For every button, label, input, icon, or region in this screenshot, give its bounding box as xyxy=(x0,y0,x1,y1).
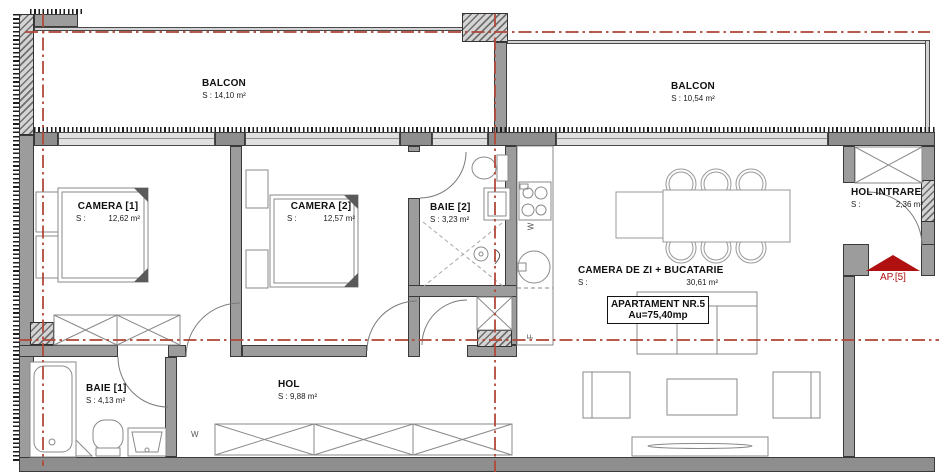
shower-drain xyxy=(474,247,488,261)
washer-label-hol: W xyxy=(191,430,199,439)
armchair-right xyxy=(773,372,820,418)
living-area: 30,61 m² xyxy=(686,278,718,287)
armchair-left xyxy=(583,372,630,418)
baie1-name: BAIE [1] xyxy=(86,383,150,394)
dining-table xyxy=(663,190,790,242)
baie2-area: S : 3,23 m² xyxy=(430,215,490,224)
nightstand xyxy=(36,192,58,232)
label-baie1: BAIE [1] S : 4,13 m² xyxy=(86,383,150,405)
axis-line-vertical-left xyxy=(42,14,44,466)
label-balcon1: BALCON S : 14,10 m² xyxy=(186,78,262,100)
hol-area: S : 9,88 m² xyxy=(278,392,338,401)
axis-line-vertical-center xyxy=(494,14,496,472)
floor-plan: BALCON S : 14,10 m² BALCON S : 10,54 m² … xyxy=(0,0,939,475)
axis-line-horizontal-bottom xyxy=(19,339,939,341)
apartment-number: APARTAMENT NR.5 xyxy=(610,299,706,310)
baie2-name: BAIE [2] xyxy=(430,202,490,213)
corner-shelf xyxy=(76,440,92,456)
nightstand xyxy=(246,170,268,208)
washer-label-kitchen: W xyxy=(526,223,535,231)
entrance-arrow-icon xyxy=(866,255,920,271)
label-hol-intrare: HOL INTRARE S : 2,36 m² xyxy=(851,187,923,209)
kitchen-island xyxy=(616,192,663,238)
toilet-tank xyxy=(497,155,508,181)
tv-stand xyxy=(632,437,768,456)
hol-name: HOL xyxy=(278,379,338,390)
door-arc-camera1 xyxy=(186,303,240,357)
balcon1-name: BALCON xyxy=(186,78,262,89)
camera1-s: S : xyxy=(76,214,86,223)
camera1-name: CAMERA [1] xyxy=(76,201,140,212)
apartment-usable-area: Au=75,40mp xyxy=(610,310,706,321)
camera1-area: 12,62 m² xyxy=(108,214,140,223)
living-s: S : xyxy=(578,278,588,287)
toilet-baie1 xyxy=(93,420,123,450)
wardrobe-hol xyxy=(215,424,512,455)
shower-drain-center xyxy=(479,252,483,256)
coffee-table xyxy=(667,379,737,415)
bed-camera2 xyxy=(246,170,358,288)
label-living: CAMERA DE ZI + BUCATARIE S : 30,61 m² xyxy=(578,265,718,287)
label-hol: HOL S : 9,88 m² xyxy=(278,379,338,401)
hol-intrare-area: 2,36 m² xyxy=(896,200,923,209)
balcon2-name: BALCON xyxy=(655,81,731,92)
camera2-name: CAMERA [2] xyxy=(287,201,355,212)
kitchen-counter xyxy=(517,146,553,345)
toilet-base xyxy=(96,448,120,456)
toilet-bowl xyxy=(472,157,496,179)
camera2-s: S : xyxy=(287,214,297,223)
nightstand xyxy=(246,250,268,288)
camera2-area: 12,57 m² xyxy=(323,214,355,223)
label-camera1: CAMERA [1] S : 12,62 m² xyxy=(76,201,140,223)
fridge-label: F xyxy=(526,334,535,339)
counter xyxy=(517,146,553,345)
label-balcon2: BALCON S : 10,54 m² xyxy=(655,81,731,103)
label-baie2: BAIE [2] S : 3,23 m² xyxy=(430,202,490,224)
baie1-area: S : 4,13 m² xyxy=(86,396,150,405)
hol-intrare-s: S : xyxy=(851,200,861,209)
living-name: CAMERA DE ZI + BUCATARIE xyxy=(578,265,718,276)
hol-intrare-name: HOL INTRARE xyxy=(851,187,923,198)
dining-set xyxy=(616,169,790,263)
nightstand xyxy=(36,236,58,278)
balcon1-area: S : 14,10 m² xyxy=(186,91,262,100)
axis-line-horizontal-top xyxy=(25,31,930,33)
wardrobe-hol-intrare xyxy=(855,147,922,183)
baie1-fixtures xyxy=(30,362,166,457)
door-arc-baie2 xyxy=(420,152,466,198)
balcon2-area: S : 10,54 m² xyxy=(655,94,731,103)
bathtub xyxy=(30,362,76,457)
door-arc-camera2 xyxy=(367,301,417,351)
entrance-arrow-label: AP.[5] xyxy=(866,272,920,283)
apartment-title-box: APARTAMENT NR.5 Au=75,40mp xyxy=(607,296,709,324)
label-camera2: CAMERA [2] S : 12,57 m² xyxy=(287,201,355,223)
